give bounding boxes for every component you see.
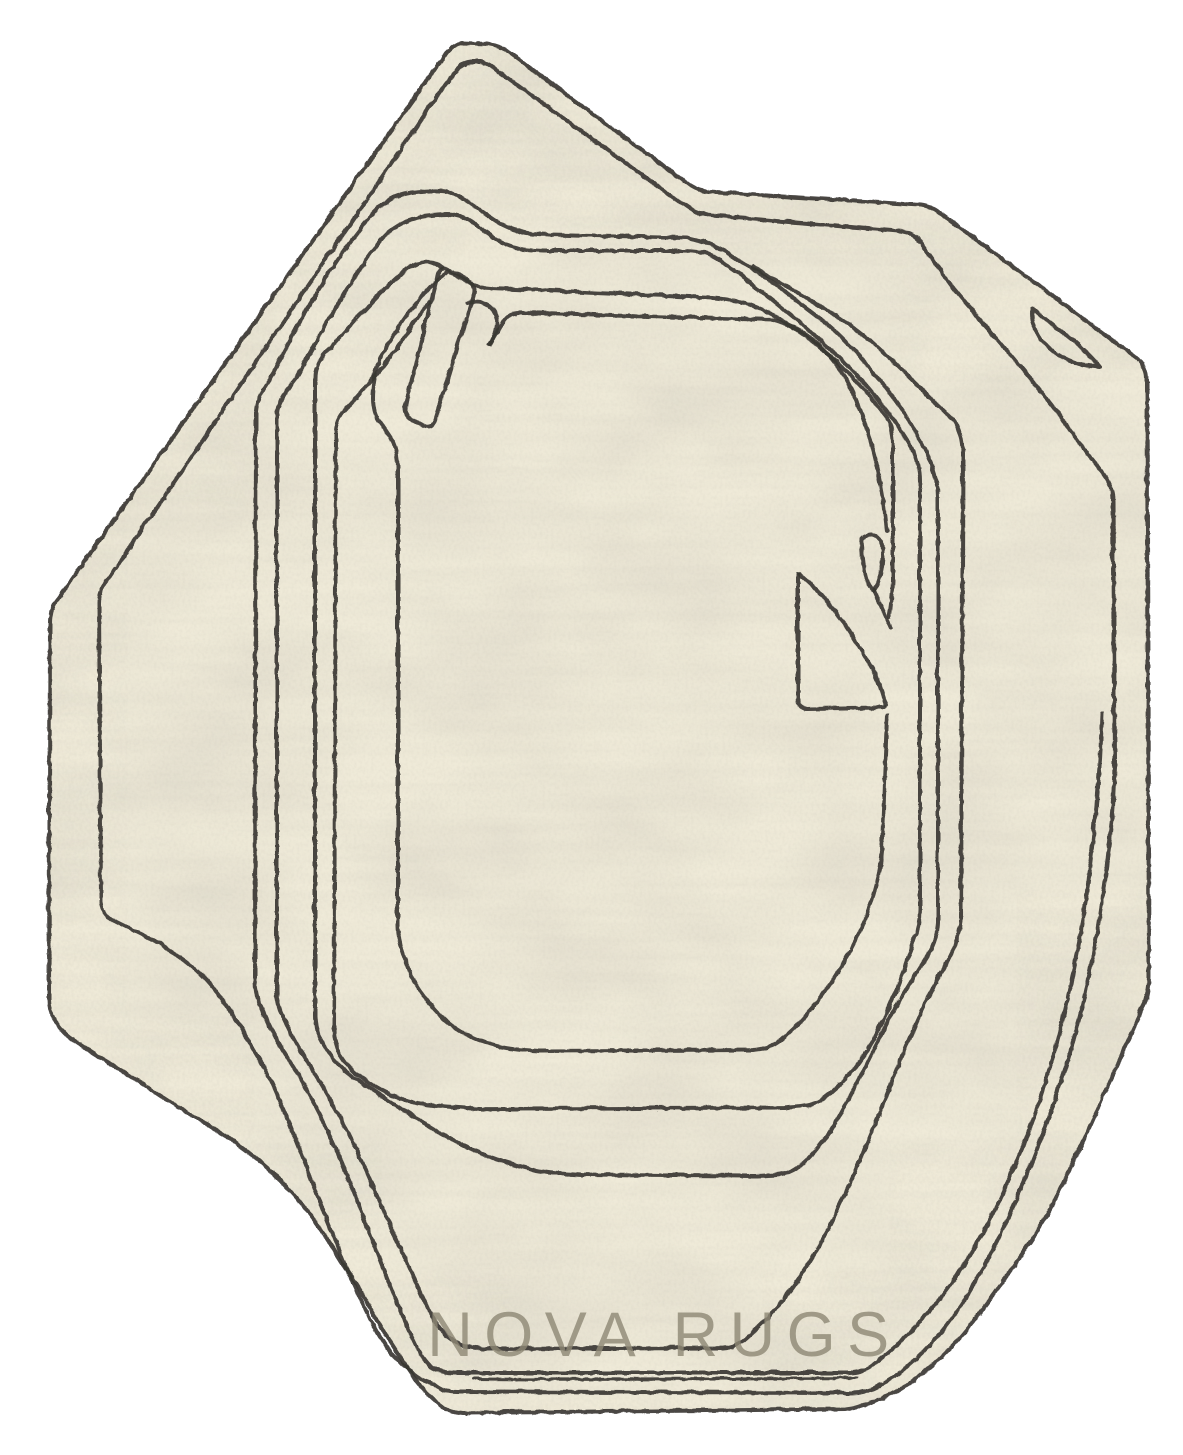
svg-text:NOVA RUGS: NOVA RUGS bbox=[427, 1300, 900, 1370]
